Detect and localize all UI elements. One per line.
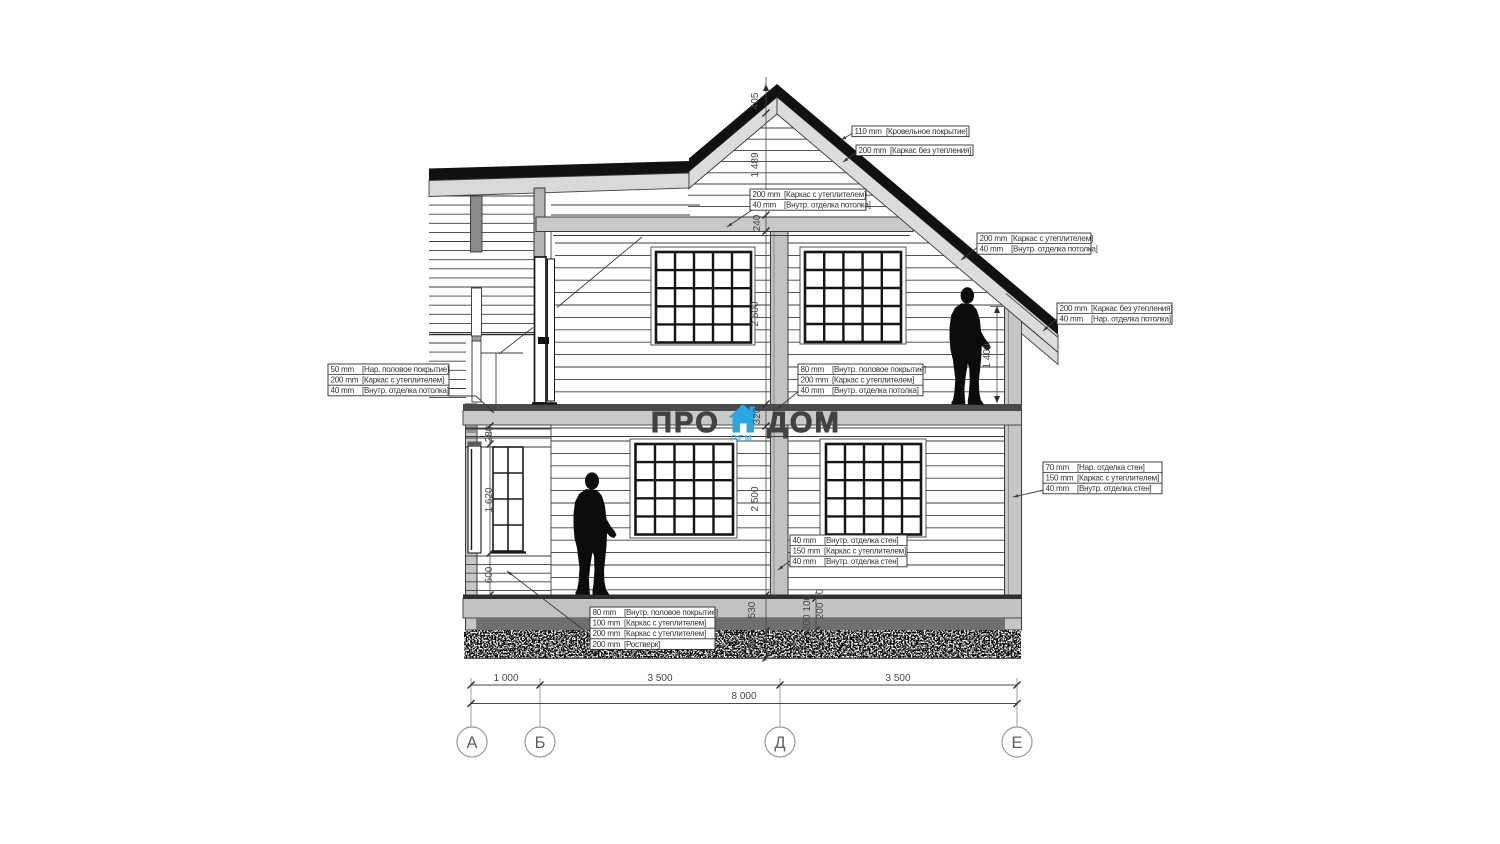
svg-text:200 mm[Ростверк]: 200 mm[Ростверк]	[593, 640, 661, 649]
svg-text:200 100: 200 100	[802, 594, 813, 631]
svg-text:40 mm[Внутр. отделка потолка]: 40 mm[Внутр. отделка потолка]	[753, 201, 871, 210]
svg-text:Е: Е	[1011, 734, 1022, 752]
svg-text:Д: Д	[774, 734, 785, 752]
svg-text:3 500: 3 500	[647, 673, 672, 684]
svg-text:РЕМ: РЕМ	[731, 433, 753, 443]
svg-text:40 mm[Внутр. отделка потолка]: 40 mm[Внутр. отделка потолка]	[980, 245, 1098, 254]
svg-text:1 000: 1 000	[493, 673, 518, 684]
svg-text:40 mm[Внутр. отделка потолка]: 40 mm[Внутр. отделка потолка]	[801, 386, 919, 395]
svg-text:40 mm[Внутр. отделка стен]: 40 mm[Внутр. отделка стен]	[793, 536, 899, 545]
svg-text:100 mm[Каркас с утеплителем]: 100 mm[Каркас с утеплителем]	[593, 619, 706, 628]
svg-text:40 mm[Внутр. отделка потолка]: 40 mm[Внутр. отделка потолка]	[331, 386, 449, 395]
svg-text:200 mm[Каркас с утеплителем]: 200 mm[Каркас с утеплителем]	[980, 234, 1093, 243]
svg-text:200 mm[Каркас с утеплителем]: 200 mm[Каркас с утеплителем]	[801, 376, 914, 385]
svg-text:40 mm[Нар. отделка потолка]: 40 mm[Нар. отделка потолка]	[1060, 315, 1171, 324]
svg-text:40 mm[Внутр. отделка стен]: 40 mm[Внутр. отделка стен]	[1046, 484, 1152, 493]
svg-text:200 mm[Каркас с утеплителем]: 200 mm[Каркас с утеплителем]	[331, 376, 444, 385]
svg-text:2 500: 2 500	[750, 486, 761, 511]
svg-text:1 489: 1 489	[750, 152, 761, 177]
svg-text:8 000: 8 000	[731, 691, 756, 702]
svg-text:1 620: 1 620	[484, 487, 495, 512]
svg-text:405: 405	[750, 92, 761, 109]
svg-text:280: 280	[484, 425, 495, 442]
svg-text:530: 530	[747, 601, 758, 618]
svg-text:200 mm[Каркас с утеплителем]: 200 mm[Каркас с утеплителем]	[753, 190, 866, 199]
svg-text:50 mm[Нар. половое покрытие]: 50 mm[Нар. половое покрытие]	[331, 365, 450, 374]
svg-text:600: 600	[484, 566, 495, 583]
svg-text:70 mm[Нар. отделка стен]: 70 mm[Нар. отделка стен]	[1046, 463, 1145, 472]
svg-text:80 mm[Внутр. половое покрытие]: 80 mm[Внутр. половое покрытие]	[801, 365, 926, 374]
svg-text:80 mm[Внутр. половое покрытие]: 80 mm[Внутр. половое покрытие]	[593, 608, 718, 617]
svg-text:320: 320	[752, 407, 763, 424]
svg-text:Б: Б	[535, 734, 546, 752]
svg-text:110 mm[Кровельное покрытие]: 110 mm[Кровельное покрытие]	[855, 127, 968, 136]
svg-text:40 mm[Внутр. отделка стен]: 40 mm[Внутр. отделка стен]	[793, 557, 899, 566]
svg-text:ПРО: ПРО	[651, 407, 720, 439]
svg-text:3 500: 3 500	[885, 673, 910, 684]
svg-text:2 500: 2 500	[750, 301, 761, 326]
svg-text:150 mm[Каркас с утеплителем]: 150 mm[Каркас с утеплителем]	[793, 547, 906, 556]
svg-text:200 mm[Каркас без утепления]: 200 mm[Каркас без утепления]	[1060, 304, 1173, 313]
svg-text:400: 400	[747, 634, 758, 651]
svg-text:ДОМ: ДОМ	[767, 407, 841, 439]
svg-text:150 mm[Каркас с утеплителем]: 150 mm[Каркас с утеплителем]	[1046, 474, 1159, 483]
svg-text:А: А	[466, 734, 477, 752]
svg-text:200 mm[Каркас без утепления]: 200 mm[Каркас без утепления]	[859, 146, 972, 155]
svg-text:240: 240	[752, 214, 763, 231]
svg-text:200 mm[Каркас с утеплителем]: 200 mm[Каркас с утеплителем]	[593, 629, 706, 638]
svg-text:200 30: 200 30	[815, 588, 826, 619]
svg-text:1 409: 1 409	[982, 343, 993, 368]
